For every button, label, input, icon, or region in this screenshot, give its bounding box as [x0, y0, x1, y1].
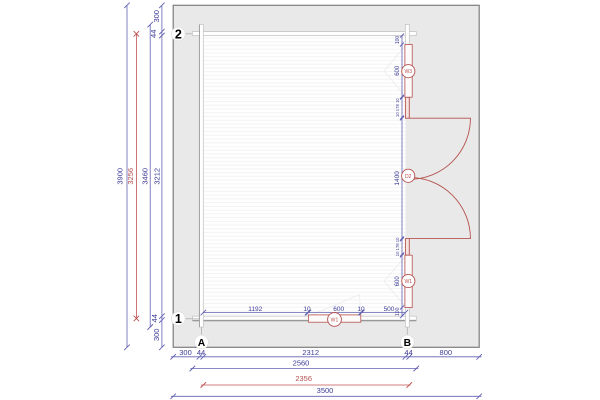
svg-text:W1: W1	[404, 279, 412, 285]
svg-text:1400: 1400	[394, 171, 401, 186]
svg-text:D2: D2	[405, 174, 412, 180]
svg-text:10 178 10: 10 178 10	[395, 237, 400, 256]
svg-text:3460: 3460	[141, 168, 150, 185]
svg-text:44: 44	[149, 30, 158, 38]
svg-text:2560: 2560	[293, 358, 310, 367]
svg-text:W1: W1	[331, 317, 339, 323]
svg-text:1: 1	[175, 312, 182, 326]
svg-text:300: 300	[179, 348, 192, 357]
svg-text:2356: 2356	[295, 374, 312, 383]
svg-text:3900: 3900	[116, 168, 125, 185]
svg-text:3256: 3256	[126, 168, 135, 185]
svg-text:2312: 2312	[302, 348, 319, 357]
svg-text:10 178 10: 10 178 10	[395, 98, 400, 117]
svg-text:10: 10	[357, 306, 365, 313]
svg-text:300: 300	[152, 329, 161, 342]
svg-text:600: 600	[333, 306, 344, 313]
svg-text:300: 300	[152, 10, 161, 23]
svg-text:3212: 3212	[152, 168, 161, 185]
svg-text:100: 100	[395, 307, 401, 316]
svg-text:600: 600	[395, 276, 401, 287]
svg-text:W3: W3	[404, 69, 412, 75]
svg-text:1192: 1192	[248, 306, 262, 313]
svg-text:44: 44	[150, 314, 159, 322]
svg-text:2: 2	[175, 28, 182, 42]
svg-text:500: 500	[384, 306, 395, 313]
svg-text:3500: 3500	[317, 386, 334, 395]
svg-text:10: 10	[303, 306, 311, 313]
svg-text:44: 44	[197, 348, 205, 357]
svg-text:600: 600	[395, 65, 401, 76]
svg-text:100: 100	[395, 36, 401, 45]
svg-text:800: 800	[440, 348, 453, 357]
svg-text:44: 44	[404, 348, 412, 357]
